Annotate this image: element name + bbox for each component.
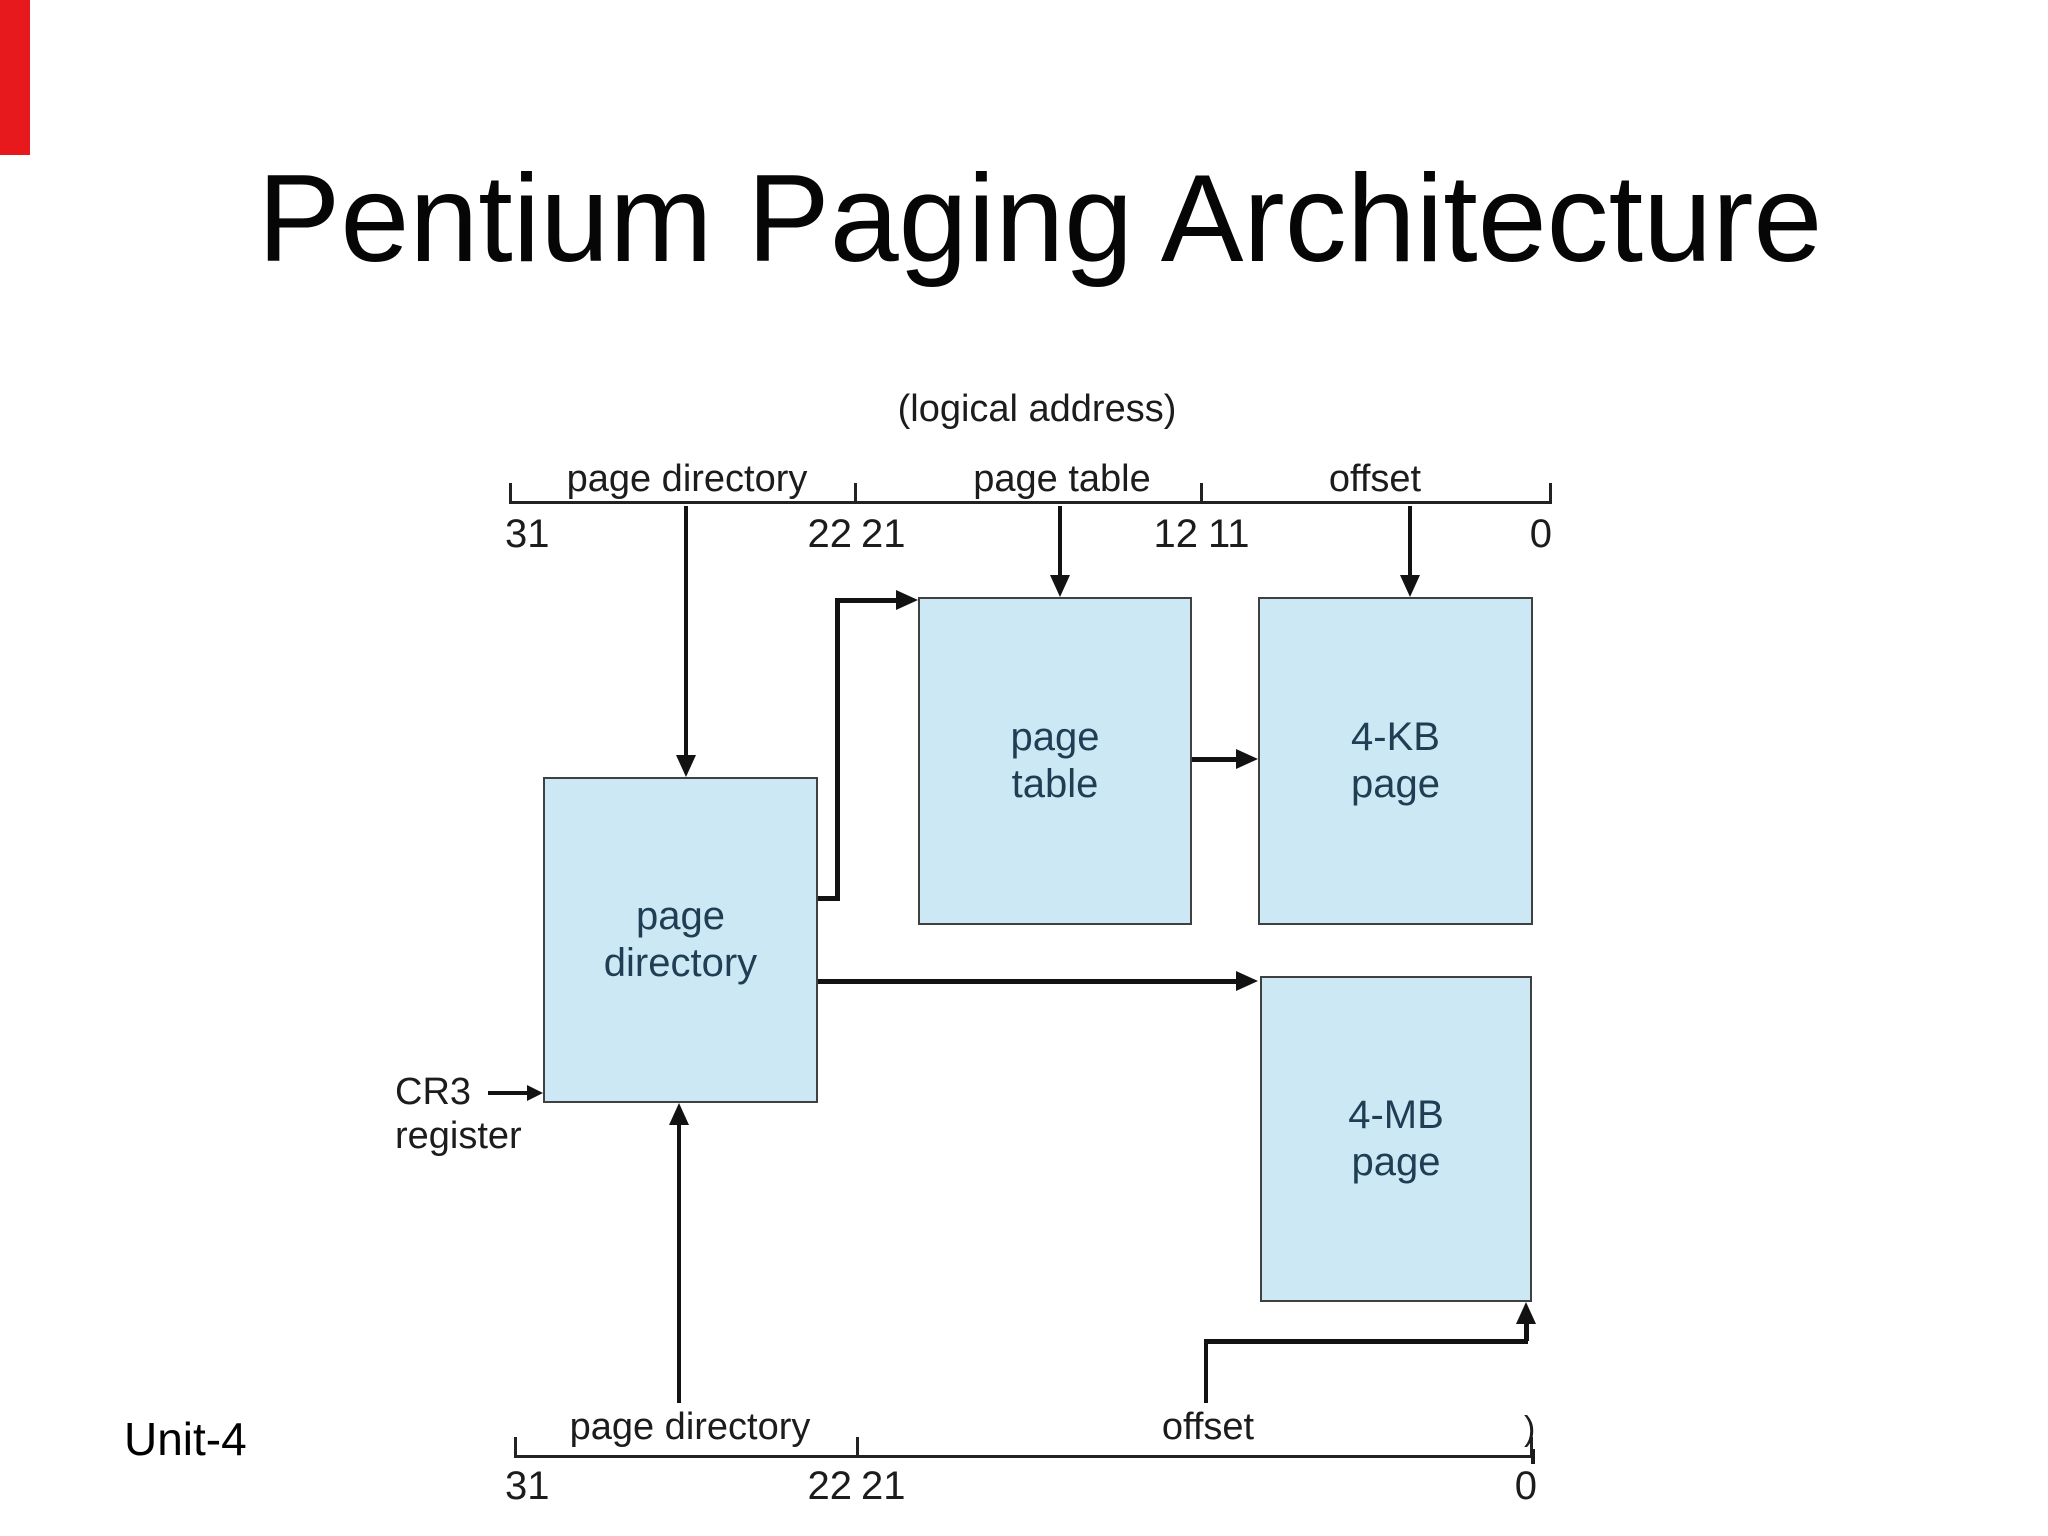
top-bit-31: 31 <box>505 512 550 557</box>
logical-address-label: (logical address) <box>887 388 1187 431</box>
bottom-field-offset-label: offset <box>1058 1406 1358 1449</box>
top-bracket-line <box>509 501 1552 504</box>
arrow-right-icon <box>1236 749 1258 769</box>
top-bracket-tick-22-21 <box>854 483 857 504</box>
page-directory-box: page directory <box>543 777 818 1103</box>
scan-edge-artifact: ) <box>1524 1410 1535 1449</box>
unit-footer: Unit-4 <box>124 1412 247 1466</box>
red-accent-strip <box>0 0 30 155</box>
top-bit-21: 21 <box>861 512 906 557</box>
bottom-bracket-tick-left <box>514 1437 517 1458</box>
bottom-field-page-directory-label: page directory <box>540 1406 840 1449</box>
top-bracket-tick-12-11 <box>1200 483 1203 504</box>
top-bracket-tick-left <box>509 483 512 504</box>
arrow-up-icon <box>669 1103 689 1125</box>
page-table-box: page table <box>918 597 1192 925</box>
arrow-down-icon <box>1400 575 1420 597</box>
page-title: Pentium Paging Architecture <box>0 148 2048 290</box>
top-bit-12: 12 <box>1126 512 1198 557</box>
arrow-right-icon <box>527 1085 543 1101</box>
arrow-up-icon <box>1516 1302 1536 1324</box>
top-field-page-table-label: page table <box>912 458 1212 501</box>
page-table-index-arrow-line <box>1058 506 1062 577</box>
top-bit-0: 0 <box>1480 512 1552 557</box>
offset-to-mb-seg1 <box>1204 1341 1208 1403</box>
mb-page-box: 4-MB page <box>1260 976 1532 1302</box>
offset-to-mb-seg2 <box>1204 1339 1528 1344</box>
bottom-bracket-tick-22-21 <box>856 1437 859 1458</box>
top-bracket-tick-right <box>1549 483 1552 504</box>
arrow-right-icon <box>896 590 918 610</box>
offset-index-arrow-line <box>1408 506 1412 577</box>
arrow-down-icon <box>1050 575 1070 597</box>
bottom-bit-0: 0 <box>1465 1464 1537 1509</box>
slide-canvas: Pentium Paging Architecture (logical add… <box>0 0 2048 1536</box>
pd-to-pt-connector-seg3 <box>835 598 898 603</box>
arrow-down-icon <box>676 755 696 777</box>
top-field-offset-label: offset <box>1225 458 1525 501</box>
pd-to-pt-connector-seg2 <box>835 598 840 901</box>
cr3-register-label: CR3 register <box>395 1070 522 1158</box>
bottom-bit-21: 21 <box>861 1464 906 1509</box>
scan-edge-artifact-dash <box>1531 1449 1535 1464</box>
kb-page-box: 4-KB page <box>1258 597 1533 925</box>
bottom-bit-31: 31 <box>505 1464 550 1509</box>
arrow-right-icon <box>1236 971 1258 991</box>
bottom-bit-22: 22 <box>780 1464 852 1509</box>
bottom-bracket-line <box>514 1455 1533 1458</box>
top-field-page-directory-label: page directory <box>537 458 837 501</box>
page-directory-index-arrow-line <box>684 506 688 757</box>
pt-to-kb-connector <box>1192 757 1238 762</box>
bottom-pd-arrow-line <box>677 1123 681 1403</box>
top-bit-22: 22 <box>780 512 852 557</box>
pd-to-mb-connector <box>818 979 1238 984</box>
top-bit-11: 11 <box>1208 512 1250 557</box>
cr3-arrow-line <box>488 1091 529 1095</box>
